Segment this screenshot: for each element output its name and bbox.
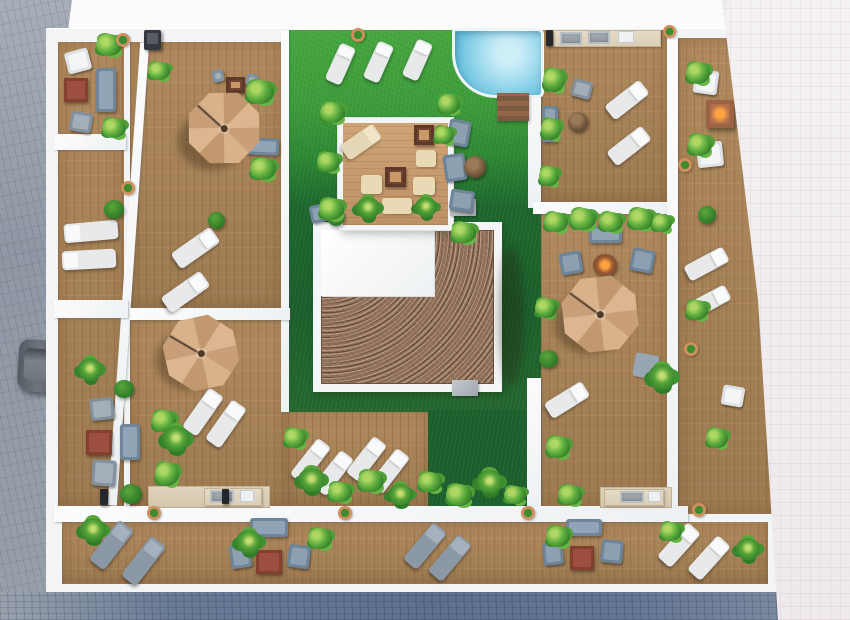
kitchen-appliance: [620, 491, 644, 503]
bbq-grill: [144, 30, 161, 50]
plant: [438, 94, 460, 114]
plant: [686, 62, 710, 84]
armchair-blue: [629, 247, 656, 274]
plant: [544, 212, 568, 232]
palm-plant: [415, 197, 437, 217]
plant: [155, 462, 179, 486]
palm-plant: [388, 484, 413, 505]
plant: [628, 208, 654, 230]
coffee-table-round: [568, 112, 588, 132]
plant: [319, 198, 344, 220]
plant: [418, 472, 442, 492]
dining-table-dark: [385, 167, 406, 187]
palm-plant: [298, 468, 325, 492]
trimmed-bush: [114, 380, 134, 398]
armchair-blue: [449, 188, 476, 212]
rooftop-render: [0, 0, 850, 620]
flower-pot: [663, 25, 676, 38]
plant: [541, 118, 561, 140]
armchair-gray: [68, 110, 93, 134]
flower-pot: [147, 506, 161, 520]
flower-pot: [678, 158, 692, 172]
coffee-table-red: [570, 546, 594, 570]
plant: [308, 528, 332, 549]
plant: [504, 486, 526, 504]
dining-table-dark: [414, 125, 434, 145]
terrace-divider-wall: [667, 38, 678, 514]
outdoor-sofa: [96, 68, 116, 112]
plant: [652, 214, 672, 232]
plant: [660, 522, 682, 541]
flower-pot: [351, 28, 365, 42]
lounge-mat: [416, 150, 436, 167]
lounge-mat: [361, 175, 382, 194]
flower-pot: [692, 503, 706, 517]
outdoor-sofa: [120, 424, 140, 460]
plant: [328, 482, 352, 502]
light-post: [546, 30, 553, 46]
trimmed-bush: [104, 200, 124, 219]
armchair-blue: [600, 539, 624, 564]
kitchen-appliance: [588, 31, 610, 44]
plant: [284, 428, 306, 448]
flower-pot: [521, 506, 535, 520]
coffee-table-round: [464, 156, 486, 178]
white-roof-section: [321, 230, 434, 296]
outdoor-sofa: [566, 519, 602, 536]
fire-pit-table: [706, 100, 734, 128]
pool-steps: [497, 93, 529, 121]
flower-pot: [684, 342, 698, 356]
trimmed-bush: [539, 350, 558, 368]
plant: [250, 158, 276, 180]
armchair-white: [720, 384, 745, 408]
flower-pot: [338, 506, 352, 520]
palm-plant: [80, 518, 106, 542]
plant: [148, 62, 170, 80]
plant: [451, 222, 476, 243]
armchair-blue: [287, 544, 312, 570]
plant: [434, 126, 454, 144]
kitchen-sink: [648, 491, 661, 502]
palm-plant: [736, 538, 760, 560]
palm-plant: [476, 470, 503, 494]
plant: [558, 485, 582, 505]
utility-box: [452, 380, 478, 396]
plant: [446, 484, 472, 506]
plant: [543, 68, 565, 92]
armchair-gray: [91, 459, 117, 487]
plant: [599, 212, 623, 232]
armchair-blue: [558, 250, 583, 275]
trimmed-bush: [120, 484, 142, 504]
kitchen-appliance: [560, 32, 582, 45]
coffee-table-red: [256, 550, 282, 574]
plant: [539, 166, 559, 186]
palm-plant: [236, 530, 262, 554]
dining-table-dark: [226, 77, 245, 93]
plant: [688, 134, 712, 156]
terrace-divider-wall: [527, 378, 541, 506]
parasol-shadow: [498, 246, 524, 386]
coffee-table-red: [86, 430, 112, 455]
sun-lounger-white: [62, 249, 117, 271]
plant: [317, 152, 340, 172]
wood-deck-terrace: [541, 30, 667, 202]
palm-plant: [78, 358, 102, 381]
kitchen-sink: [240, 490, 254, 502]
light-post: [100, 489, 108, 505]
palm-plant: [162, 426, 190, 452]
plant: [546, 436, 570, 458]
terrace-divider-wall: [281, 30, 289, 412]
plant: [546, 526, 570, 547]
palm-plant: [356, 197, 380, 219]
plant: [320, 102, 345, 123]
pavement-cobblestone-shaded: [0, 592, 782, 620]
plant: [686, 300, 708, 320]
fire-table-round: [593, 254, 617, 276]
plant: [706, 428, 728, 448]
flower-pot: [121, 181, 135, 195]
plant: [246, 80, 274, 104]
kitchen-sink: [618, 31, 634, 43]
lounge-mat: [413, 177, 435, 195]
light-post: [222, 489, 229, 504]
plant: [102, 118, 126, 138]
coffee-table-red: [64, 78, 88, 102]
flower-pot: [116, 33, 130, 47]
plant: [358, 470, 384, 492]
plant: [570, 208, 596, 230]
armchair-gray: [89, 397, 115, 421]
trimmed-bush: [698, 206, 716, 224]
palm-plant: [648, 364, 676, 390]
plant: [535, 298, 557, 318]
trimmed-bush: [208, 212, 225, 229]
terrace-divider-wall: [54, 300, 128, 318]
lounge-mat: [382, 198, 412, 214]
armchair-gray: [211, 69, 225, 83]
